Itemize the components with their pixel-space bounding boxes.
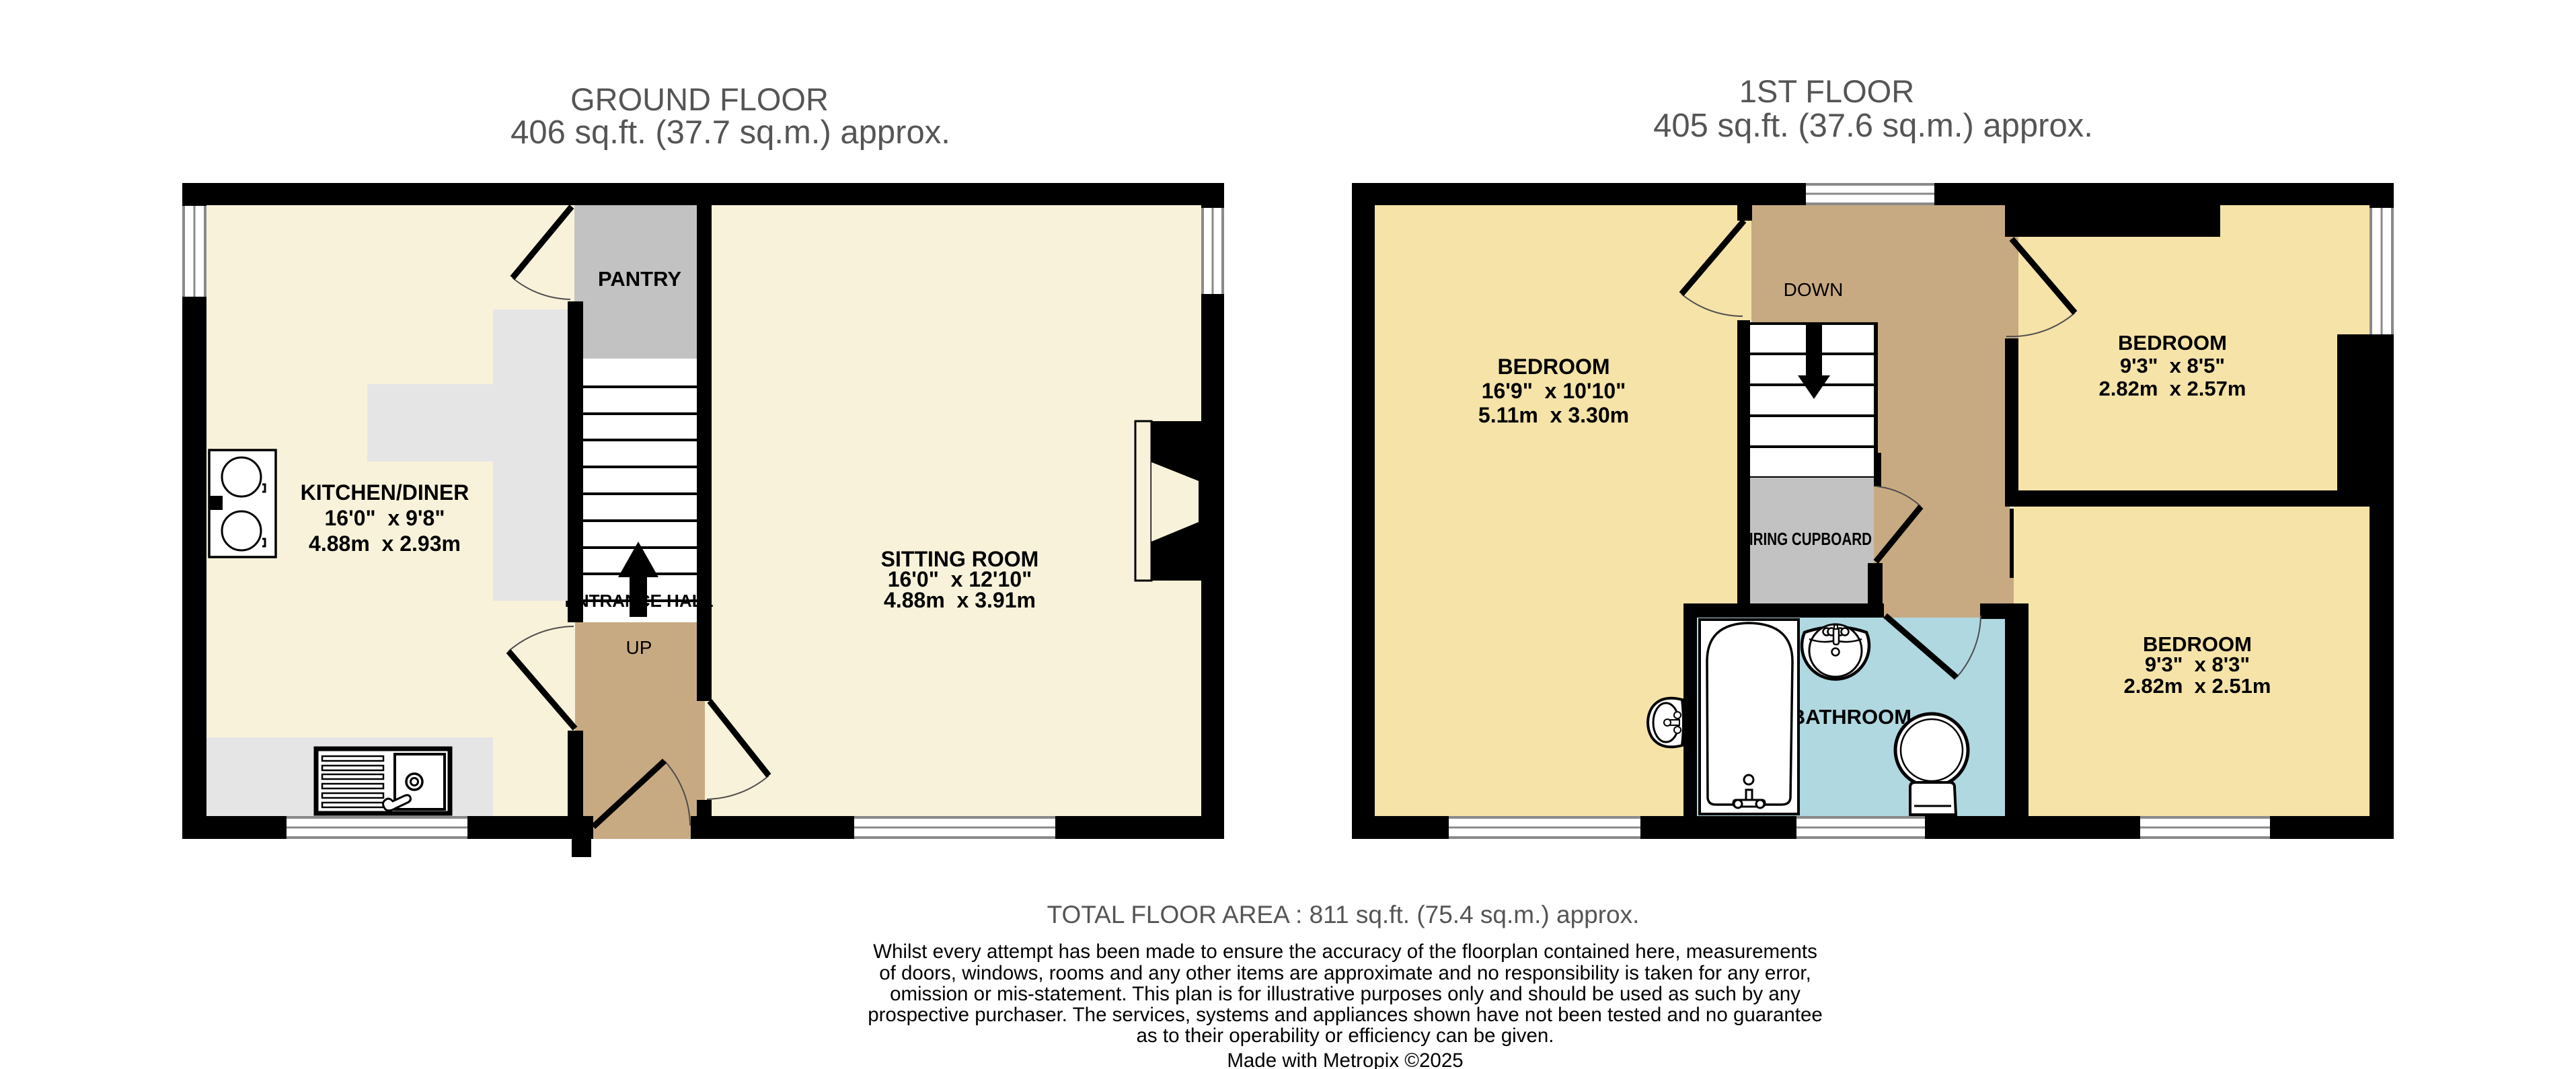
- svg-text:Made with Metropix ©2025: Made with Metropix ©2025: [1227, 1049, 1463, 1069]
- svg-text:TOTAL FLOOR AREA : 811 sq.ft.: TOTAL FLOOR AREA : 811 sq.ft. (75.4 sq.m…: [1047, 901, 1640, 928]
- svg-text:4.88m x 2.93m: 4.88m x 2.93m: [309, 531, 461, 556]
- svg-text:5.11m x 3.30m: 5.11m x 3.30m: [1478, 403, 1629, 427]
- svg-text:2.82m x 2.51m: 2.82m x 2.51m: [2124, 674, 2271, 698]
- svg-text:UP: UP: [626, 637, 652, 658]
- svg-text:KITCHEN/DINER: KITCHEN/DINER: [301, 480, 469, 505]
- svg-text:406 sq.ft. (37.7 sq.m.) approx: 406 sq.ft. (37.7 sq.m.) approx.: [510, 114, 950, 151]
- svg-text:as to their operability or eff: as to their operability or efficiency ca…: [1137, 1025, 1554, 1047]
- svg-text:AIRING CUPBOARD: AIRING CUPBOARD: [1739, 529, 1872, 549]
- svg-text:DOWN: DOWN: [1784, 279, 1844, 300]
- svg-text:4.88m x 3.91m: 4.88m x 3.91m: [884, 588, 1036, 612]
- svg-text:omission or mis-statement. Thi: omission or mis-statement. This plan is …: [890, 983, 1801, 1005]
- svg-text:prospective purchaser. The ser: prospective purchaser. The services, sys…: [868, 1004, 1823, 1026]
- svg-text:2.82m x 2.57m: 2.82m x 2.57m: [2099, 377, 2246, 400]
- svg-text:1ST FLOOR: 1ST FLOOR: [1739, 73, 1914, 109]
- svg-text:Whilst every attempt has been: Whilst every attempt has been made to en…: [873, 941, 1817, 963]
- svg-text:BEDROOM: BEDROOM: [1497, 355, 1609, 379]
- svg-text:BEDROOM: BEDROOM: [2118, 331, 2227, 355]
- svg-text:16'9" x 10'10": 16'9" x 10'10": [1482, 379, 1626, 403]
- svg-text:BATHROOM: BATHROOM: [1790, 705, 1911, 729]
- svg-text:PANTRY: PANTRY: [598, 267, 681, 291]
- svg-text:of doors, windows, rooms and a: of doors, windows, rooms and any other i…: [879, 962, 1811, 984]
- svg-text:9'3" x 8'3": 9'3" x 8'3": [2145, 653, 2250, 676]
- svg-text:GROUND FLOOR: GROUND FLOOR: [570, 81, 829, 117]
- svg-text:9'3" x 8'5": 9'3" x 8'5": [2120, 354, 2225, 377]
- svg-text:405 sq.ft. (37.6 sq.m.) approx: 405 sq.ft. (37.6 sq.m.) approx.: [1653, 108, 2093, 144]
- svg-text:16'0" x 9'8": 16'0" x 9'8": [324, 506, 445, 530]
